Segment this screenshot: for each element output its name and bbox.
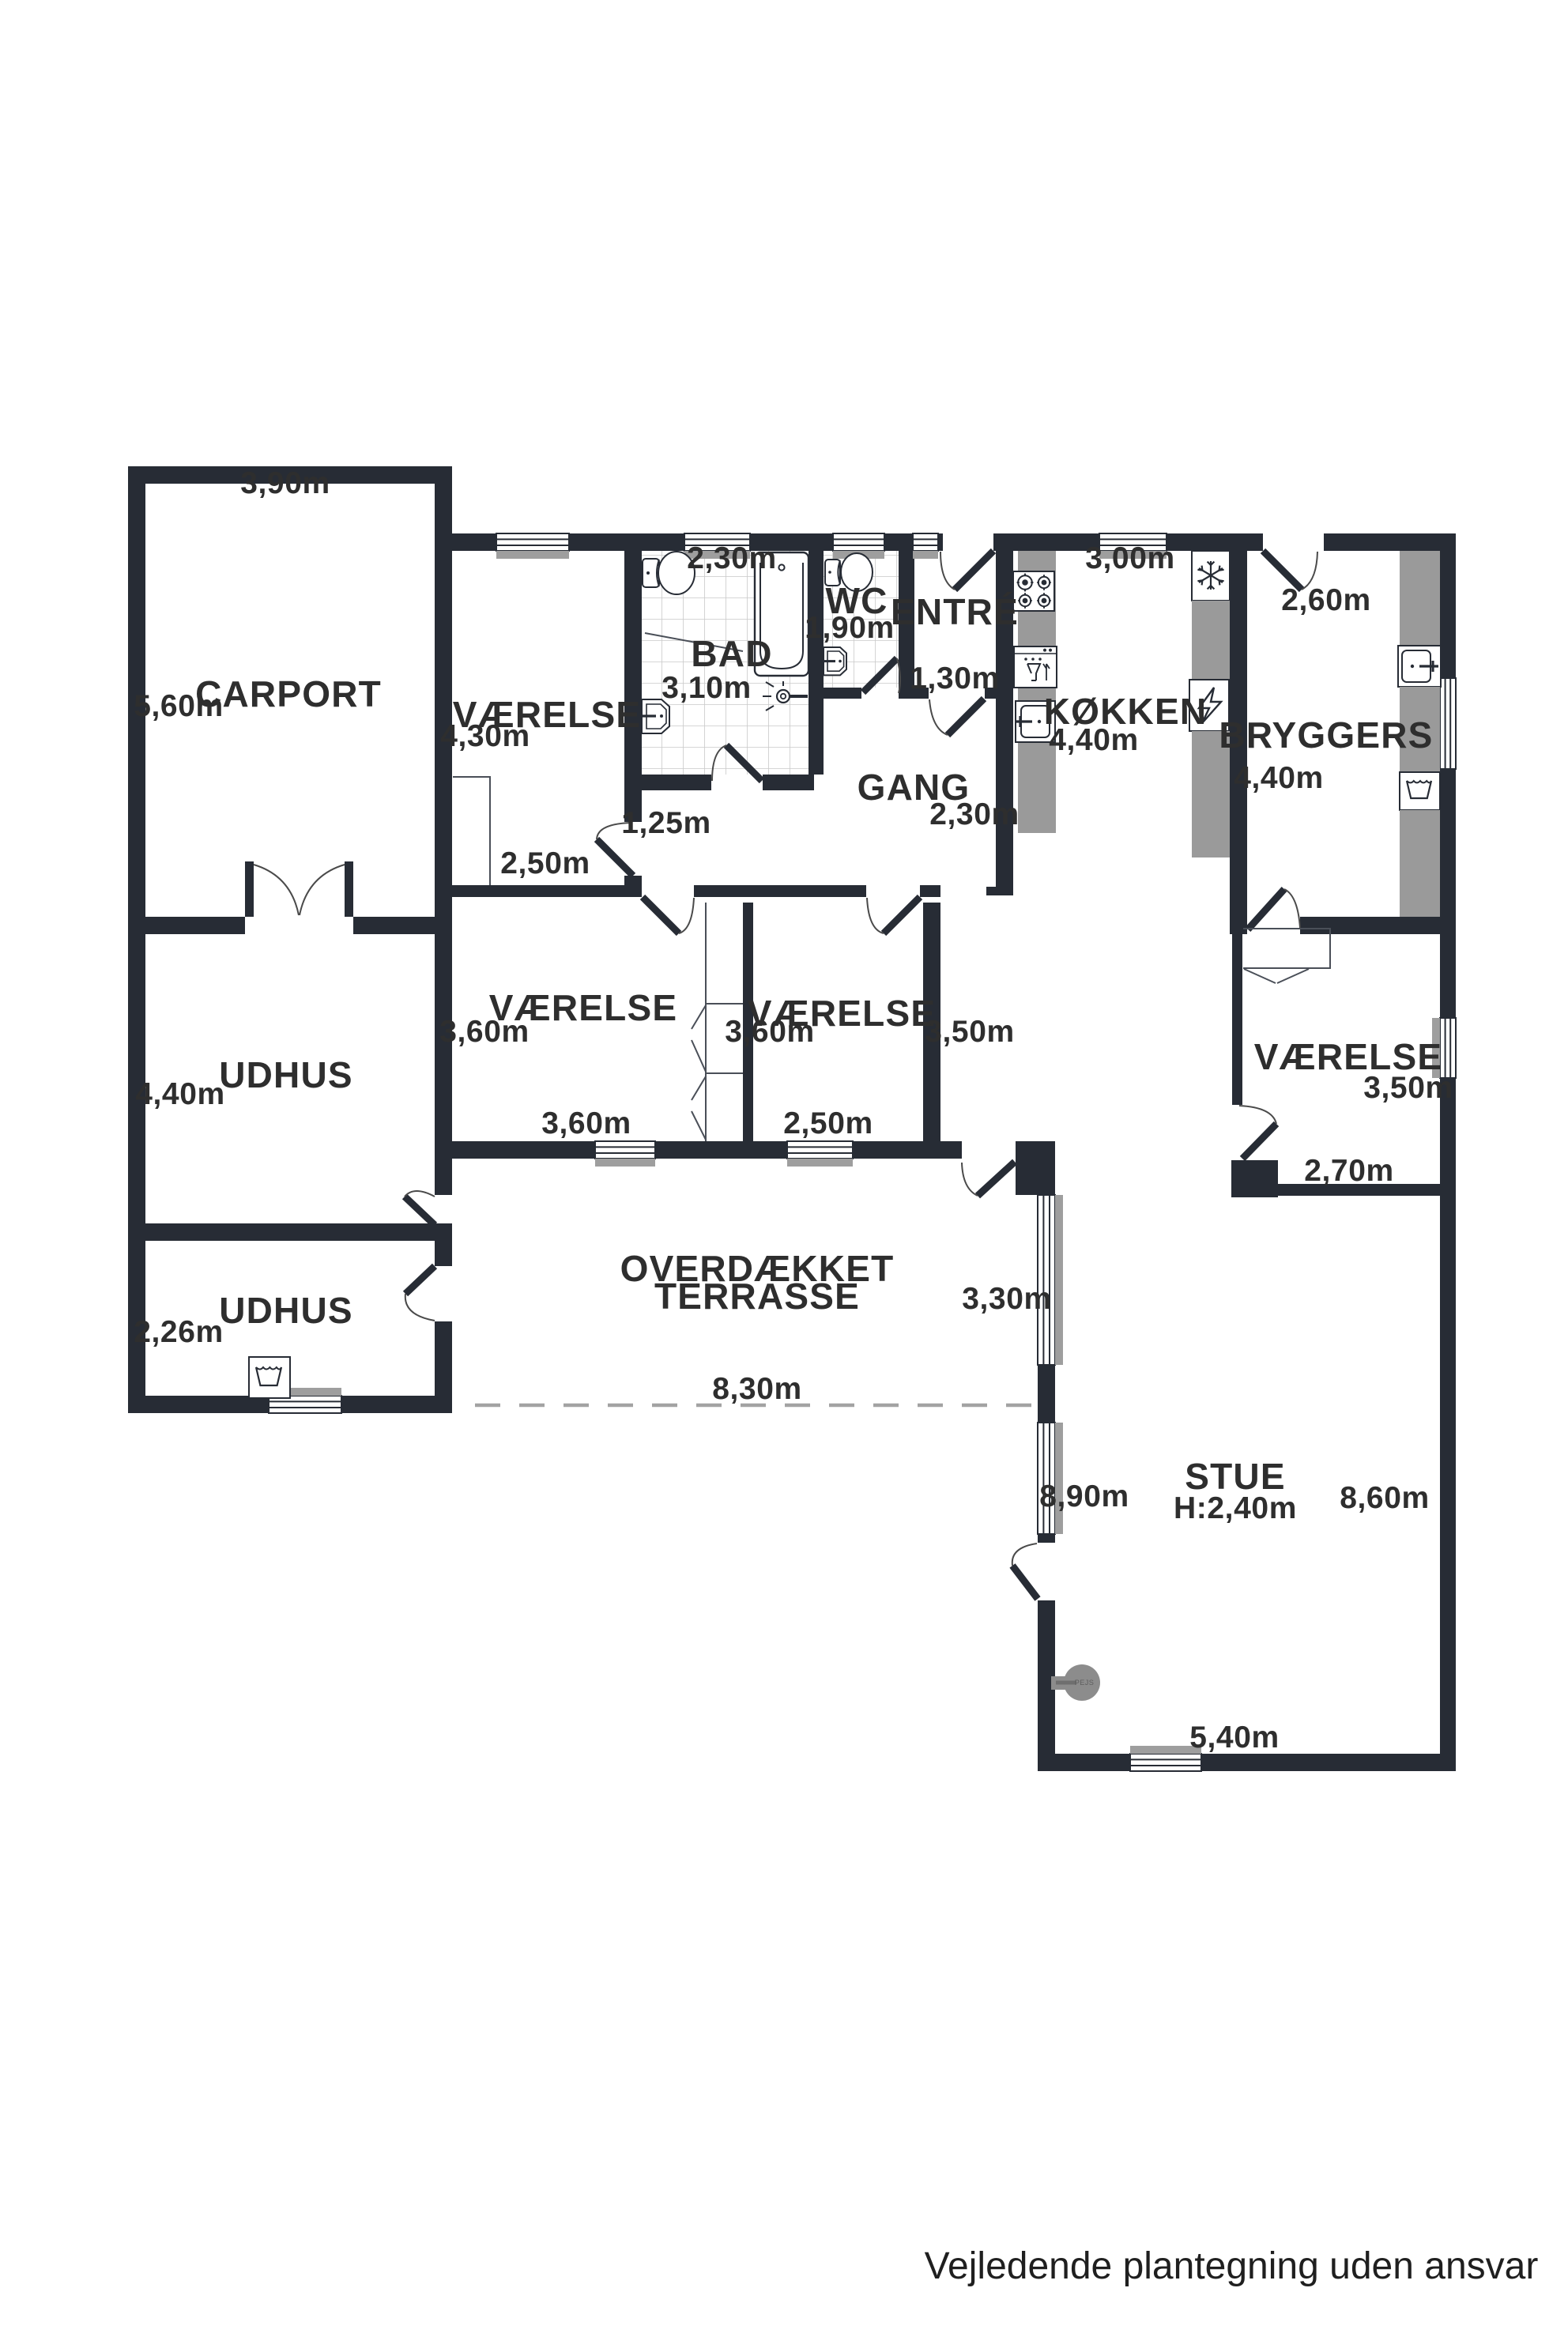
- udhus-bottom-label: UDHUS: [219, 1290, 353, 1331]
- terrasse-height-dim: 3,30m: [962, 1282, 1052, 1316]
- gang-stub-dim: 1,25m: [621, 806, 711, 840]
- carport-udhus-walls: [128, 466, 452, 1413]
- stue-bottom-dim: 5,40m: [1189, 1721, 1280, 1755]
- vaerelse-mid-right-height-dim: 3,60m: [725, 1015, 815, 1049]
- closet-vaerelse-nw: [453, 777, 490, 885]
- stue-ceiling-dim: H:2,40m: [1174, 1491, 1297, 1525]
- koekken-width-dim: 3,00m: [1085, 541, 1175, 575]
- window-stue-west-upper: [1038, 1195, 1063, 1365]
- entre-label: ENTRÉ: [891, 591, 1019, 632]
- vaerelse-nw-height-dim: 4,30m: [440, 719, 530, 753]
- bryggers-counter-top: [1400, 551, 1440, 646]
- floor-plan-page: PEJS 3,90m CARPORT 5,60m UDHUS 4,40m UDH…: [0, 0, 1568, 2352]
- door-vaerelse-mid-left: [643, 897, 694, 933]
- udhus-washer-icon: [249, 1357, 290, 1398]
- bad-label: BAD: [691, 633, 772, 674]
- carport-width-dim: 3,90m: [240, 466, 330, 500]
- stue-left-dim: 8,90m: [1039, 1479, 1129, 1513]
- sink-icon-wc: [824, 647, 846, 675]
- bad-height-dim: 3,10m: [661, 671, 752, 705]
- fireplace-label: PEJS: [1075, 1679, 1095, 1687]
- fridge-icon: [1192, 551, 1230, 601]
- vaerelse-mid-left-height-dim: 3,60m: [439, 1015, 530, 1049]
- closet-vaerelse-east: [1243, 929, 1330, 983]
- entre-width-dim: 1,30m: [910, 661, 1000, 695]
- udhus-top-dim: 4,40m: [135, 1077, 225, 1111]
- bryggers-width-dim: 2,60m: [1281, 583, 1371, 617]
- door-entre: [940, 551, 993, 590]
- bryggers-label: BRYGGERS: [1219, 714, 1433, 756]
- kitchen-tall-cabinet: [1192, 601, 1230, 680]
- door-entre-gang: [929, 699, 984, 735]
- window-vaerelse-mid-right: [787, 1141, 853, 1167]
- vaerelse-mid-left-width-dim: 3,60m: [541, 1106, 631, 1140]
- door-bryggers-south: [1248, 889, 1300, 929]
- bryggers-counter-bottom: [1400, 810, 1440, 917]
- stue-details: PEJS: [475, 1405, 1100, 1701]
- door-carport-double: [245, 861, 353, 917]
- bad-width-dim: 2,30m: [687, 541, 777, 575]
- wc-width-dim: 1,90m: [805, 611, 895, 645]
- door-vaerelse-east: [1239, 1106, 1276, 1159]
- stove-icon: [1013, 571, 1054, 611]
- fireplace-icon: PEJS: [1051, 1664, 1100, 1701]
- vaerelse-mid-right-width-dim: 2,50m: [783, 1106, 873, 1140]
- hall-dim: 3,50m: [925, 1015, 1015, 1049]
- window-stue-west-lower: [1038, 1423, 1063, 1534]
- udhus-bottom-dim: 2,26m: [134, 1315, 224, 1349]
- bryggers-washer-icon: [1400, 772, 1440, 810]
- vaerelse-east-height-dim: 3,50m: [1363, 1071, 1453, 1105]
- vaerelse-east-width-dim: 2,70m: [1304, 1154, 1394, 1188]
- door-stue-west: [1012, 1543, 1038, 1599]
- window-vaerelse-mid-left: [595, 1141, 655, 1167]
- window-entre: [913, 533, 938, 559]
- disclaimer-text: Vejledende plantegning uden ansvar: [925, 2245, 1539, 2287]
- door-terrasse-passage: [962, 1162, 1015, 1196]
- carport-height-dim: 5,60m: [134, 689, 224, 723]
- dishwasher-icon: [1014, 646, 1057, 688]
- koekken-height-dim: 4,40m: [1049, 723, 1139, 757]
- bryggers-sink-icon: [1398, 646, 1441, 687]
- terrasse-label-line2: TERRASSE: [654, 1276, 860, 1317]
- door-udhus-top: [405, 1191, 435, 1225]
- door-vaerelse-mid-right: [867, 897, 920, 933]
- terrasse-width-dim: 8,30m: [712, 1372, 802, 1406]
- vaerelse-nw-width-dim: 2,50m: [500, 846, 590, 880]
- floor-plan-drawing: PEJS 3,90m CARPORT 5,60m UDHUS 4,40m UDH…: [0, 0, 1568, 2352]
- door-udhus-bottom: [405, 1266, 435, 1321]
- stue-right-dim: 8,60m: [1340, 1481, 1430, 1515]
- gang-width-dim: 2,30m: [929, 797, 1020, 831]
- window-vaerelse-nw: [496, 533, 569, 559]
- bryggers-height-dim: 4,40m: [1234, 761, 1324, 795]
- udhus-top-label: UDHUS: [219, 1054, 353, 1095]
